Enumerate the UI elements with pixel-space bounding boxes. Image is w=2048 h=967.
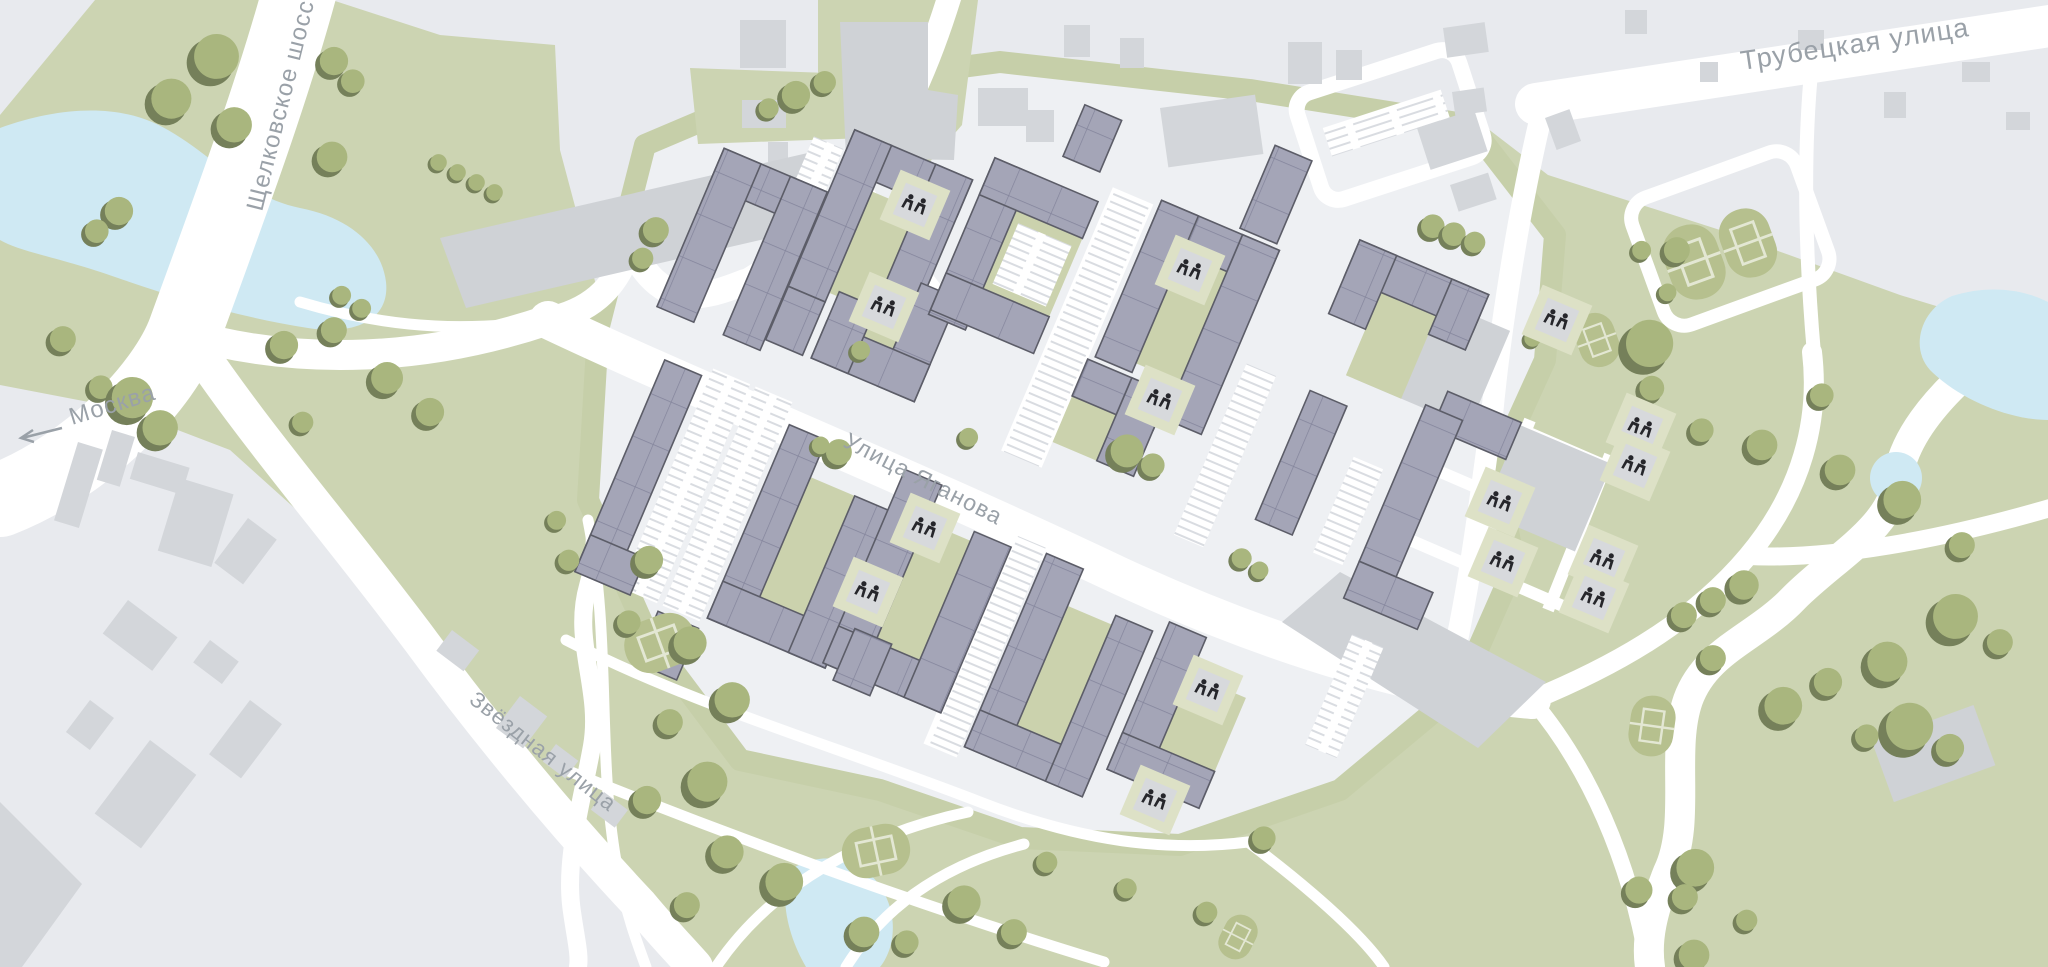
site-plan-map: Трубецкая улица Щелковское шоссе Москва …: [0, 0, 2048, 967]
site-plan: Трубецкая улица Щелковское шоссе Москва …: [0, 0, 2048, 967]
